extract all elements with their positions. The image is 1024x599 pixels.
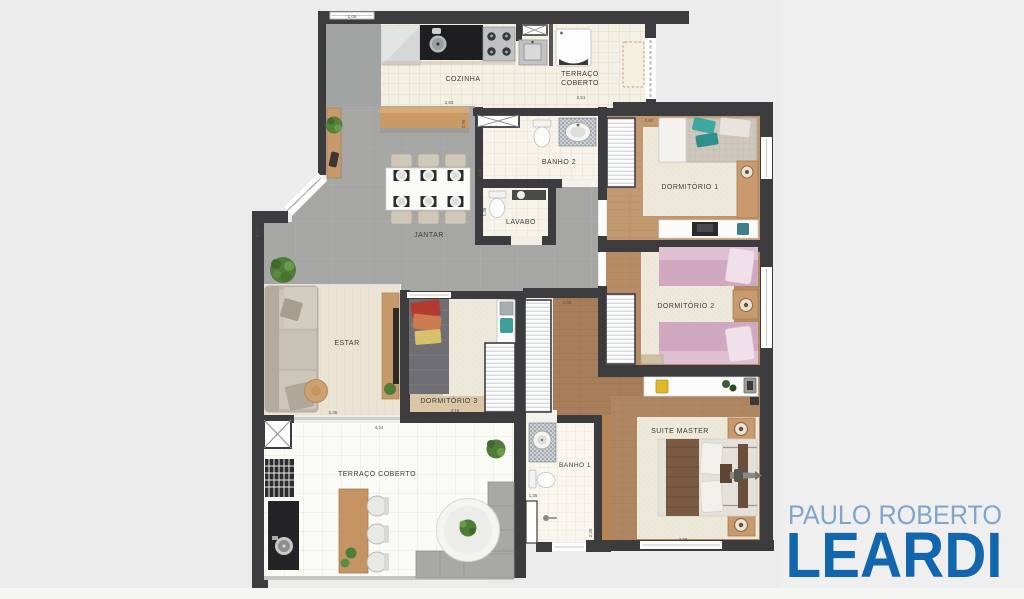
svg-text:1,35: 1,35 <box>482 207 487 216</box>
svg-text:LEARDI: LEARDI <box>786 519 1003 591</box>
svg-text:DORMITÓRIO 1: DORMITÓRIO 1 <box>661 182 718 191</box>
svg-text:COBERTO: COBERTO <box>561 80 599 87</box>
svg-text:2,20: 2,20 <box>588 528 593 537</box>
svg-text:JANTAR: JANTAR <box>414 232 444 239</box>
svg-text:COZINHA: COZINHA <box>446 76 481 83</box>
svg-text:2,83: 2,83 <box>445 100 454 105</box>
svg-text:2,38: 2,38 <box>679 537 688 542</box>
svg-text:TERRAÇO: TERRAÇO <box>561 71 599 78</box>
svg-text:1,88: 1,88 <box>563 300 572 305</box>
svg-text:SUITE MASTER: SUITE MASTER <box>651 428 709 435</box>
svg-text:2,99: 2,99 <box>461 119 466 128</box>
svg-text:LAVABO: LAVABO <box>506 219 536 226</box>
svg-text:BANHO 1: BANHO 1 <box>559 462 591 469</box>
svg-text:DORMITÓRIO 2: DORMITÓRIO 2 <box>657 301 714 310</box>
svg-text:2,51: 2,51 <box>577 95 586 100</box>
svg-text:3,16: 3,16 <box>451 408 460 413</box>
svg-text:2,33: 2,33 <box>477 168 482 177</box>
svg-text:DORMITÓRIO 3: DORMITÓRIO 3 <box>420 396 477 405</box>
svg-text:1,06: 1,06 <box>348 14 357 19</box>
svg-text:ESTAR: ESTAR <box>334 340 359 347</box>
svg-text:TERRAÇO COBERTO: TERRAÇO COBERTO <box>338 471 416 478</box>
svg-text:0,60: 0,60 <box>645 118 654 123</box>
svg-text:1,35: 1,35 <box>529 493 538 498</box>
svg-text:4,24: 4,24 <box>375 425 384 430</box>
svg-text:BANHO 2: BANHO 2 <box>542 159 576 166</box>
svg-text:3,81: 3,81 <box>255 228 260 237</box>
svg-text:2,45: 2,45 <box>329 410 338 415</box>
